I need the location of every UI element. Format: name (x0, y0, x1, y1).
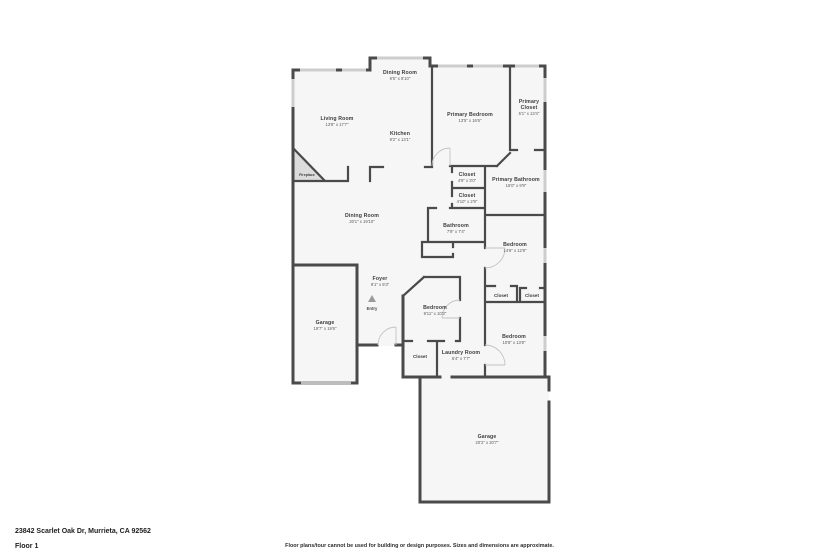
floorplan-svg: Entry Dining Room 9'5" x 8'10" Living Ro… (0, 0, 839, 560)
room-dims-dining-nook: 9'5" x 8'10" (390, 76, 411, 81)
room-dims-laundry: 6'4" x 7'7" (452, 356, 471, 361)
room-dims-primary-closet: 5'1" x 13'4" (519, 111, 540, 116)
room-label-closet-b: Closet (525, 293, 540, 298)
room-dims-dining-main: 20'1" x 19'10" (349, 219, 375, 224)
entry-label: Entry (367, 306, 378, 311)
room-label-fireplace: Fireplace (299, 173, 315, 177)
disclaimer-text: Floor plans/tour cannot be used for buil… (0, 543, 839, 549)
room-dims-closet-mid: 4'10" x 2'9" (457, 199, 478, 204)
room-dims-bedroom-bottom: 10'8" x 13'9" (503, 340, 526, 345)
room-dims-primary-bathroom: 16'0" x 9'9" (506, 183, 527, 188)
room-dims-bedroom-right: 14'6" x 12'8" (504, 248, 527, 253)
floorplan-page: Entry Dining Room 9'5" x 8'10" Living Ro… (0, 0, 839, 560)
room-dims-garage-left: 19'7" x 19'6" (314, 326, 337, 331)
room-label-closet-bottom: Closet (413, 354, 428, 359)
room-dims-living: 13'8" x 17'7" (326, 122, 349, 127)
room-label-closet-a: Closet (494, 293, 509, 298)
room-dims-bathroom: 7'9" x 7'4" (447, 229, 466, 234)
room-dims-primary-bedroom: 13'5" x 16'6" (459, 118, 482, 123)
room-dims-closet-top: 4'9" x 3'0" (458, 178, 477, 183)
room-dims-kitchen: 9'2" x 13'1" (390, 137, 411, 142)
address-text: 23842 Scarlet Oak Dr, Murrieta, CA 92562 (15, 528, 151, 535)
room-dims-garage-bottom: 20'2" x 20'7" (476, 440, 499, 445)
room-dims-foyer: 9'1" x 5'3" (371, 282, 390, 287)
room-dims-bedroom-center: 9'11" x 10'3" (424, 311, 447, 316)
